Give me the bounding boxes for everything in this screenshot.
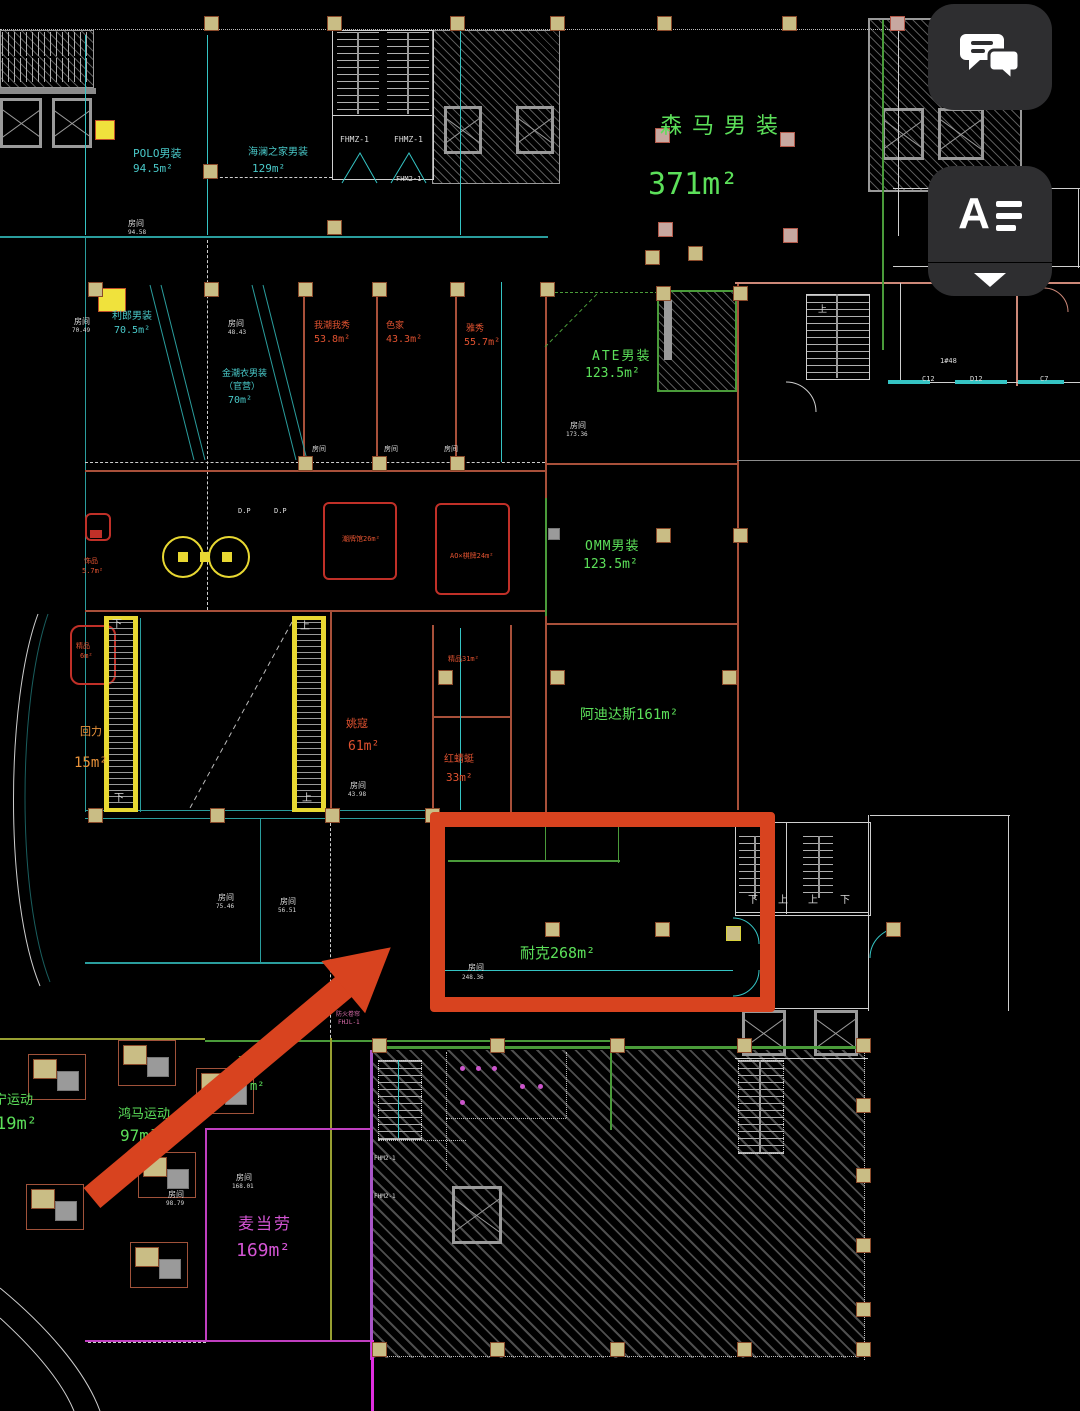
room-tag: 房间 [444, 446, 458, 453]
chat-bubbles-icon [958, 30, 1022, 84]
plan-graphic [538, 1084, 543, 1089]
plan-graphic [898, 30, 899, 236]
plan-graphic [432, 625, 434, 813]
column-marker [783, 228, 798, 243]
escalator-right [292, 616, 326, 812]
plan-graphic [376, 282, 378, 468]
plan-graphic [900, 283, 901, 383]
column-marker [210, 808, 225, 823]
plan-graphic [737, 460, 1080, 461]
room-tag: 房间 [74, 318, 90, 326]
room-label-omm: OMM男装 [585, 540, 639, 553]
window-tag: C12 [922, 376, 935, 383]
room-label: AO×棋牌24m² [450, 553, 494, 560]
plan-graphic [332, 115, 432, 116]
room-label: 姚寇 [346, 718, 368, 729]
column-marker [656, 528, 671, 543]
plan-graphic [1008, 815, 1009, 1011]
elevator-shaft [516, 106, 554, 154]
room-label-ate: ATE男装 [592, 350, 651, 363]
plan-graphic [0, 88, 96, 94]
plan-graphic [455, 282, 457, 468]
plan-graphic [370, 1050, 373, 1360]
plan-graphic [260, 818, 261, 964]
plan-graphic [330, 1038, 332, 1342]
column-marker [298, 456, 313, 471]
room-tag: 168.01 [232, 1184, 254, 1190]
plan-graphic [882, 20, 884, 350]
elevator-shaft [444, 106, 482, 154]
room-label: 精品31m² [448, 656, 479, 663]
column-marker [95, 120, 115, 140]
stair-tag: FHM2-1 [374, 1194, 396, 1200]
column-marker [450, 456, 465, 471]
plan-graphic [818, 836, 820, 898]
room-tag: 173.36 [566, 432, 588, 438]
plan-graphic [85, 818, 430, 819]
window-tag: C7 [1040, 376, 1048, 383]
plan-graphic [205, 1128, 372, 1130]
room-tag: 房间 [236, 1174, 252, 1182]
column-marker [298, 282, 313, 297]
room-tag: 48.43 [228, 330, 246, 336]
stair-run [738, 1060, 784, 1154]
plan-graphic [167, 1169, 189, 1189]
room-label-polo: POLO男装 [133, 148, 182, 159]
area-label: 61m² [348, 740, 379, 753]
plan-graphic [2, 32, 90, 56]
fire-shutter-tag: 防火卷帘 [336, 1012, 360, 1018]
column-marker [657, 16, 672, 31]
column-marker [325, 808, 340, 823]
column-marker [550, 16, 565, 31]
column-marker [88, 808, 103, 823]
room-label: 饰品 [84, 558, 98, 565]
column-marker [372, 1038, 387, 1053]
elevator-shaft [452, 1186, 502, 1244]
stair-tag: FHM2-1 [396, 176, 421, 183]
plan-graphic [303, 282, 305, 468]
stair-tag: FHM2-1 [374, 1156, 396, 1162]
room-tag: 房间 [350, 782, 366, 790]
plan-graphic [664, 300, 672, 360]
area-label: 6m² [80, 653, 93, 660]
room-tag: 房间 [570, 422, 586, 430]
chevron-down-icon [974, 273, 1006, 287]
area-label: 5.7m² [82, 568, 103, 575]
plan-graphic [85, 962, 333, 964]
plan-graphic [520, 1084, 525, 1089]
column-marker [327, 220, 342, 235]
room-label: （官营） [224, 383, 260, 392]
room-label-mcdonalds: 麦当劳 [238, 1216, 292, 1232]
column-marker [372, 282, 387, 297]
plan-graphic [85, 35, 86, 235]
column-marker [450, 16, 465, 31]
plan-graphic [545, 498, 547, 616]
plan-graphic [545, 292, 663, 293]
room-label: 精品 [76, 643, 90, 650]
plan-graphic [123, 1045, 147, 1065]
column-marker [548, 528, 560, 540]
stair-tag: FHMZ-1 [340, 136, 369, 144]
plan-graphic [147, 1057, 169, 1077]
area-label: 55.7m² [464, 338, 500, 348]
column-marker [88, 282, 103, 297]
stairwell-midright [806, 294, 870, 380]
cad-floorplan-viewer: A POLO男装94.5m²海澜之家男装129m²森马男装371m²房间94.5… [0, 0, 1080, 1411]
plan-graphic [85, 610, 547, 612]
plan-graphic [460, 1066, 465, 1071]
stair-direction: 上 [808, 896, 818, 906]
plan-graphic [868, 815, 869, 1011]
plan-graphic [545, 463, 739, 465]
column-marker [372, 456, 387, 471]
room-label: 雅秀 [466, 325, 484, 334]
room-tag: 房间 [280, 898, 296, 906]
column-marker [782, 16, 797, 31]
column-marker [856, 1238, 871, 1253]
room-label-hongma: 鸿马运动 [118, 1108, 170, 1121]
room-label: 我潮我秀 [314, 322, 350, 331]
column-marker [856, 1302, 871, 1317]
column-cluster [26, 1184, 84, 1230]
plan-graphic [1016, 294, 1018, 386]
column-marker [856, 1168, 871, 1183]
column-marker [658, 222, 673, 237]
plan-graphic [398, 1060, 399, 1138]
plan-graphic [446, 1052, 447, 1170]
plan-graphic [759, 1060, 761, 1152]
room-tag: 75.46 [216, 904, 234, 910]
column-cluster [118, 1040, 176, 1086]
plan-graphic [1078, 188, 1079, 268]
plan-graphic [205, 1128, 207, 1342]
road-curve [0, 1288, 100, 1411]
column-marker [450, 282, 465, 297]
plan-graphic [735, 1058, 868, 1059]
area-label: 43.3m² [386, 335, 422, 345]
column-marker [610, 1038, 625, 1053]
plan-graphic [460, 1100, 465, 1105]
plan-graphic [492, 1066, 497, 1071]
column-marker [204, 282, 219, 297]
room-tag: 94.58 [128, 230, 146, 236]
column-marker [438, 670, 453, 685]
column-marker [737, 1038, 752, 1053]
letter-a-icon: A [958, 192, 990, 236]
area-label: 123.5m² [585, 367, 640, 380]
column-marker [203, 164, 218, 179]
stair-direction: 下 [112, 620, 122, 630]
room-label: 潮牌馆26m² [342, 536, 380, 543]
column-marker [856, 1342, 871, 1357]
column-cluster [28, 1054, 86, 1100]
atrium-dashed-line [190, 622, 292, 808]
plan-graphic [135, 1247, 159, 1267]
column-marker [490, 1038, 505, 1053]
plan-graphic [159, 1259, 181, 1279]
room-label: 金潮衣男装 [222, 370, 267, 379]
area-label: 70m² [228, 396, 252, 406]
window-tag: D12 [970, 376, 983, 383]
plan-graphic [88, 1342, 206, 1343]
elevator-shaft [882, 108, 924, 160]
plan-graphic [85, 462, 545, 463]
plan-graphic [407, 32, 409, 114]
room-label-lining: 宁运动 [0, 1094, 33, 1107]
column-marker [722, 670, 737, 685]
escalator-left [104, 616, 138, 812]
plan-graphic [501, 282, 502, 462]
column-marker [372, 1342, 387, 1357]
plan-graphic [610, 1042, 612, 1130]
room-label-huili: 回力 [80, 726, 102, 737]
window-tag: 1#48 [940, 358, 957, 365]
area-label: 33m² [446, 772, 473, 783]
stair-direction: 上 [302, 794, 312, 804]
column-marker [645, 250, 660, 265]
column-marker [733, 286, 748, 301]
column-marker [327, 16, 342, 31]
plan-graphic [0, 236, 548, 238]
room-label-hailan: 海澜之家男装 [248, 148, 308, 158]
plan-graphic [55, 1201, 77, 1221]
area-label: 94.5m² [133, 163, 173, 174]
plan-graphic [446, 1118, 566, 1119]
room-tag: 98.79 [166, 1201, 184, 1207]
area-label: 371m² [648, 170, 738, 200]
elevator-shaft [0, 98, 42, 148]
column-marker [733, 528, 748, 543]
room-tag: 房间 [384, 446, 398, 453]
collapse-toolbar-button[interactable] [928, 263, 1052, 296]
text-align-icon [996, 201, 1022, 231]
column-cluster [130, 1242, 188, 1288]
room-tag: 43.98 [348, 792, 366, 798]
door-arc [786, 382, 816, 412]
column-marker [856, 1038, 871, 1053]
plan-graphic [545, 623, 739, 625]
plan-graphic [476, 1066, 481, 1071]
plan-graphic [140, 618, 141, 812]
area-label: 19m² [0, 1116, 37, 1133]
plan-graphic [737, 282, 739, 810]
plan-graphic [222, 552, 232, 562]
area-label: 169m² [236, 1242, 290, 1260]
plan-graphic [85, 470, 545, 472]
plan-graphic [870, 815, 1010, 816]
area-label: 15m² [74, 756, 108, 770]
column-marker [890, 16, 905, 31]
room-tag: 56.51 [278, 908, 296, 914]
stair-direction: 下 [114, 794, 124, 804]
road-curve [25, 614, 50, 982]
elevator-shaft [52, 98, 92, 148]
elevator-shaft [814, 1010, 858, 1056]
room-label: 色家 [386, 322, 404, 331]
road-curve [14, 614, 41, 986]
fire-shutter-box [435, 503, 510, 595]
plan-graphic [31, 1189, 55, 1209]
text-annotation-button[interactable]: A [928, 166, 1052, 262]
area-label-partial: m² [250, 1080, 264, 1092]
room-tag: 房间 [312, 446, 326, 453]
column-marker [656, 286, 671, 301]
plan-graphic [210, 177, 332, 178]
plan-graphic [836, 294, 838, 378]
plan-graphic [57, 1071, 79, 1091]
room-tag: 房间 [128, 220, 144, 228]
stair-direction: 上 [300, 622, 310, 632]
room-label-hongqingting: 红蜻蜓 [444, 755, 474, 765]
elevator-shaft [938, 108, 984, 160]
area-label: 123.5m² [583, 558, 638, 571]
room-label-senma: 森马男装 [660, 116, 788, 138]
plan-graphic [357, 32, 359, 114]
column-marker [550, 670, 565, 685]
highlight-rectangle [430, 812, 775, 1012]
plan-graphic [33, 1059, 57, 1079]
plan-graphic [178, 552, 188, 562]
area-label: 129m² [252, 163, 285, 174]
column-marker [737, 1342, 752, 1357]
room-tag: 房间 [218, 894, 234, 902]
fire-shutter-tag: FHJL-1 [338, 1020, 360, 1026]
plan-graphic [330, 610, 332, 815]
column-marker [886, 922, 901, 937]
plan-graphic [510, 625, 512, 813]
plan-graphic [378, 1140, 466, 1141]
area-label: 53.8m² [314, 335, 350, 345]
plan-graphic [207, 35, 208, 235]
column-marker [490, 1342, 505, 1357]
room-label-adidas: 阿迪达斯161m² [580, 708, 678, 722]
plan-graphic [200, 552, 210, 562]
misc-tag: D.P [274, 508, 287, 515]
road-curve [0, 1318, 74, 1411]
column-marker [540, 282, 555, 297]
column-marker [610, 1342, 625, 1357]
misc-tag: D.P [238, 508, 251, 515]
column-marker [204, 16, 219, 31]
room-tag: 房间 [228, 320, 244, 328]
column-marker [856, 1098, 871, 1113]
stair-tag: FHMZ-1 [394, 136, 423, 144]
plan-graphic [460, 30, 461, 235]
room-tag: 70.49 [72, 328, 90, 334]
door-arc [1044, 288, 1068, 312]
boundary-diagonal [545, 293, 598, 347]
room-label-lilang: 利郎男装 [112, 312, 152, 322]
arrow-shaft [84, 976, 354, 1208]
column-marker [688, 246, 703, 261]
stair-direction: 上 [818, 306, 827, 315]
stair-direction: 上 [778, 896, 788, 906]
room-tag: 房间 [168, 1191, 184, 1199]
void-diagonal [150, 285, 205, 460]
plan-graphic [2, 58, 90, 82]
area-label: 70.5m² [114, 326, 150, 336]
stair-run [378, 1060, 422, 1140]
stair-direction: 下 [840, 896, 850, 906]
plan-graphic [432, 716, 512, 718]
plan-graphic [566, 1052, 567, 1118]
plan-graphic [90, 530, 102, 538]
chat-button[interactable] [928, 4, 1052, 110]
